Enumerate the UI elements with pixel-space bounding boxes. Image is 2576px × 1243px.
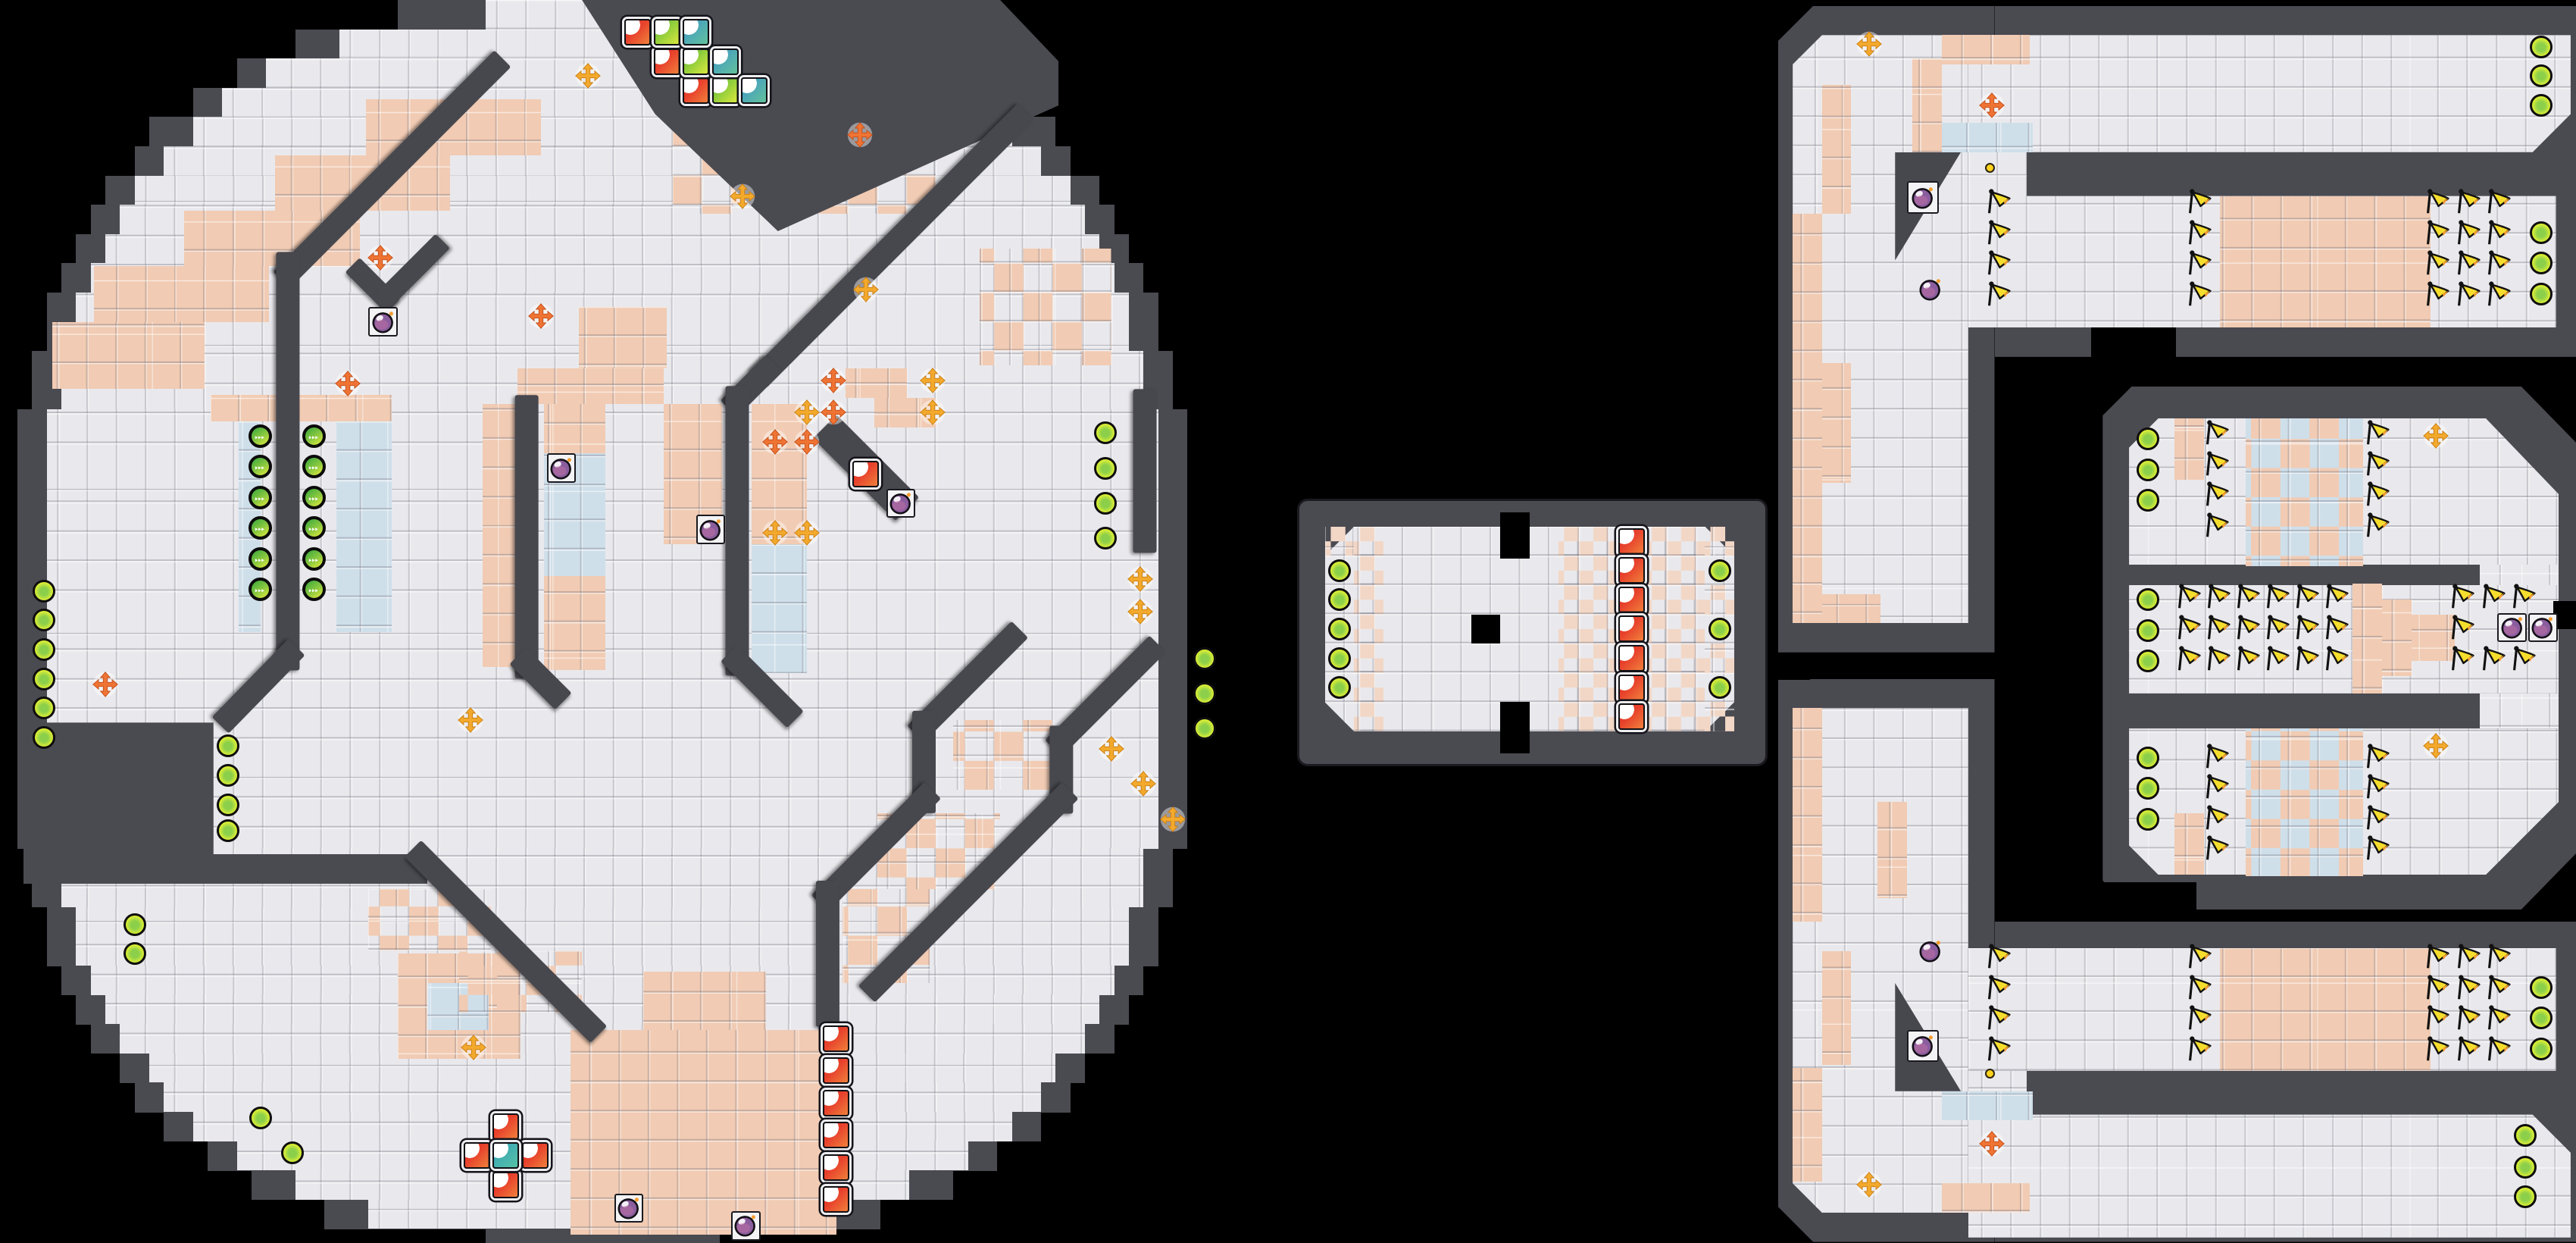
- black-pit: [1500, 512, 1530, 559]
- black-notch: [2102, 882, 2196, 912]
- green-button[interactable]: [302, 424, 326, 448]
- peach-patch: [2352, 584, 2382, 694]
- yellow-dot[interactable]: [2137, 619, 2159, 642]
- yellow-dot[interactable]: [1708, 618, 1731, 640]
- peach-patch: [1942, 35, 2030, 64]
- green-button[interactable]: [249, 455, 272, 478]
- yellow-dot[interactable]: [33, 580, 55, 603]
- peach-patch: [211, 395, 392, 421]
- floor-row: [76, 907, 1129, 937]
- blue-patch: [1942, 1091, 2033, 1121]
- peach-patch: [1822, 363, 1852, 483]
- yellow-dot[interactable]: [217, 764, 239, 787]
- red-block[interactable]: [823, 1025, 849, 1052]
- yellow-dot[interactable]: [1328, 647, 1351, 670]
- yellow-dot[interactable]: [33, 726, 55, 749]
- red-block[interactable]: [1618, 557, 1645, 584]
- peach-blue-checker-patch: [2246, 728, 2362, 876]
- fine-checker-patch: [1705, 702, 1734, 731]
- blue-block[interactable]: [683, 19, 709, 45]
- interior-wall: [514, 395, 538, 678]
- blue-patch: [752, 544, 807, 673]
- red-block[interactable]: [1618, 528, 1645, 555]
- black-notch: [2091, 327, 2176, 358]
- black-pit: [1500, 702, 1530, 753]
- red-block[interactable]: [492, 1113, 519, 1140]
- yellow-dot[interactable]: [1328, 618, 1351, 640]
- peach-patch: [846, 368, 907, 398]
- red-block[interactable]: [522, 1142, 549, 1169]
- blue-patch: [336, 421, 392, 632]
- yellow-dot[interactable]: [281, 1141, 304, 1164]
- green-block[interactable]: [654, 19, 680, 45]
- green-button[interactable]: [302, 547, 326, 571]
- peach-patch: [2382, 600, 2412, 675]
- yellow-dot[interactable]: [33, 638, 55, 661]
- peach-patch: [1822, 85, 1852, 214]
- right-middle-floor: [2480, 694, 2559, 728]
- fine-checker-patch: [1705, 585, 1734, 615]
- red-block[interactable]: [823, 1186, 849, 1213]
- red-block[interactable]: [1618, 703, 1645, 730]
- fine-checker-patch: [1325, 527, 1355, 556]
- peach-patch: [2220, 948, 2431, 1071]
- red-block[interactable]: [1618, 615, 1645, 642]
- red-block[interactable]: [683, 77, 709, 104]
- peach-patch: [1793, 708, 1822, 922]
- interior-wall: [277, 252, 300, 670]
- red-block[interactable]: [492, 1172, 519, 1198]
- yellow-dot[interactable]: [2530, 1038, 2553, 1060]
- game-world-map: [0, 0, 2576, 1243]
- floor-row: [47, 673, 1158, 703]
- peach-patch: [517, 368, 664, 403]
- yellow-dot[interactable]: [1328, 676, 1351, 699]
- peach-checker-patch: [980, 249, 1111, 365]
- peach-patch: [1912, 58, 1942, 152]
- peach-patch: [94, 266, 270, 321]
- floor-row: [91, 966, 1114, 995]
- red-block[interactable]: [852, 461, 879, 487]
- peach-patch: [1942, 1183, 2030, 1213]
- yellow-dot[interactable]: [33, 668, 55, 690]
- yellow-dot[interactable]: [1708, 676, 1731, 699]
- green-block[interactable]: [683, 49, 709, 75]
- yellow-dot[interactable]: [123, 913, 146, 936]
- yellow-dot[interactable]: [1328, 559, 1351, 582]
- black-notch: [1778, 653, 1810, 681]
- interior-wall: [1133, 389, 1157, 553]
- blue-block[interactable]: [712, 49, 739, 75]
- peach-checker-patch: [953, 720, 1052, 791]
- yellow-dot[interactable]: [2514, 1185, 2537, 1208]
- red-block[interactable]: [823, 1154, 849, 1181]
- yellow-dot[interactable]: [2137, 808, 2159, 831]
- peach-patch: [1793, 565, 1822, 623]
- red-block[interactable]: [823, 1122, 849, 1148]
- interior-wall: [725, 387, 749, 676]
- peach-patch: [1793, 1068, 1822, 1182]
- floor-row: [105, 994, 1099, 1024]
- yellow-dot[interactable]: [33, 609, 55, 631]
- red-block[interactable]: [654, 49, 680, 75]
- peach-patch: [2174, 418, 2204, 480]
- red-block[interactable]: [1618, 587, 1645, 613]
- peach-patch: [1877, 802, 1907, 898]
- blue-block[interactable]: [741, 77, 767, 104]
- green-button[interactable]: [302, 486, 326, 509]
- blue-patch: [1942, 123, 2033, 152]
- black-pit: [1471, 615, 1501, 644]
- red-block[interactable]: [624, 19, 651, 45]
- fine-checker-patch: [1705, 643, 1734, 673]
- fine-checker-patch: [1354, 527, 1383, 731]
- yellow-dot[interactable]: [2514, 1124, 2537, 1147]
- red-block[interactable]: [823, 1090, 849, 1116]
- yellow-dot[interactable]: [2137, 427, 2159, 450]
- red-block[interactable]: [1618, 645, 1645, 672]
- yellow-dot[interactable]: [217, 794, 239, 816]
- fine-checker-patch: [1705, 527, 1734, 556]
- yellow-dot[interactable]: [2137, 489, 2159, 512]
- yellow-dot[interactable]: [1328, 588, 1351, 611]
- yellow-dot[interactable]: [2137, 747, 2159, 769]
- peach-patch: [1822, 594, 1880, 624]
- floor-row: [76, 936, 1129, 966]
- green-button[interactable]: [249, 547, 272, 571]
- peach-patch: [579, 307, 667, 368]
- peach-patch: [1822, 951, 1852, 1066]
- peach-patch: [2174, 813, 2204, 875]
- yellow-dot[interactable]: [2530, 976, 2553, 999]
- peach-patch: [544, 576, 605, 670]
- interior-wall: [816, 881, 839, 1027]
- yellow-dot[interactable]: [123, 942, 146, 965]
- peach-patch: [1793, 214, 1822, 565]
- yellow-dot[interactable]: [2137, 459, 2159, 481]
- peach-patch: [571, 1030, 836, 1235]
- yellow-dot[interactable]: [249, 1107, 272, 1129]
- yellow-dot[interactable]: [1193, 647, 1216, 670]
- green-button[interactable]: [249, 424, 272, 448]
- yellow-dot[interactable]: [1708, 559, 1731, 582]
- peach-patch: [2220, 196, 2431, 328]
- wall-strip: [23, 854, 427, 884]
- yellow-dot[interactable]: [2530, 36, 2553, 58]
- green-button[interactable]: [249, 486, 272, 509]
- peach-patch: [52, 322, 205, 390]
- green-block[interactable]: [712, 77, 739, 104]
- yellow-dot[interactable]: [1094, 492, 1117, 515]
- peach-patch: [544, 404, 605, 454]
- right-top-floor: [1968, 35, 2571, 152]
- peach-patch: [643, 972, 766, 1030]
- red-block[interactable]: [464, 1142, 490, 1169]
- yellow-dot[interactable]: [1193, 682, 1216, 705]
- yellow-dot[interactable]: [33, 697, 55, 719]
- yellow-dot[interactable]: [1094, 457, 1117, 480]
- yellow-dot[interactable]: [2530, 221, 2553, 244]
- teal-block[interactable]: [492, 1142, 519, 1169]
- red-block[interactable]: [1618, 675, 1645, 701]
- red-block[interactable]: [823, 1057, 849, 1084]
- peach-blue-checker-patch: [2246, 418, 2362, 566]
